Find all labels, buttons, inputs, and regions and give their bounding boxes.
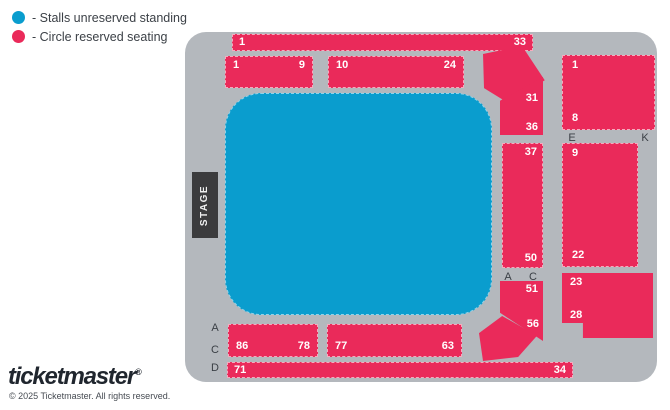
stage-label: STAGE xyxy=(200,184,211,225)
circle-block-1-9[interactable]: 1 9 xyxy=(225,56,313,88)
circle-block-1-33[interactable]: 1 33 xyxy=(232,34,533,51)
circle-block-37-50[interactable]: 37 50 xyxy=(502,143,543,268)
block-start-label: 23 xyxy=(570,277,582,288)
legend-label-stalls: - Stalls unreserved standing xyxy=(32,11,187,25)
registered-mark: ® xyxy=(135,367,142,377)
block-end-label: 28 xyxy=(570,310,582,321)
block-end-label: 63 xyxy=(442,341,454,352)
circle-block-86-78[interactable]: 86 78 xyxy=(228,324,318,357)
legend-item-stalls: - Stalls unreserved standing xyxy=(12,8,187,27)
row-marker-a-left: A xyxy=(208,322,222,334)
block-start-label: 86 xyxy=(236,341,248,352)
block-end-label: 8 xyxy=(572,113,578,124)
block-end-label: 22 xyxy=(572,250,584,261)
block-start-label: 77 xyxy=(335,341,347,352)
block-start-label: 1 xyxy=(572,60,578,71)
block-end-label: 78 xyxy=(298,341,310,352)
block-start-label: 37 xyxy=(525,147,537,158)
circle-block-9-22[interactable]: 9 22 xyxy=(562,143,638,267)
ticketmaster-logo: ticketmaster® xyxy=(8,363,142,391)
venue-map-panel: STAGE 1 33 1 9 10 24 31 36 37 50 xyxy=(185,32,657,382)
block-end-label: 50 xyxy=(525,253,537,264)
row-marker-d-left: D xyxy=(208,362,222,374)
block-start-label: 10 xyxy=(336,60,348,71)
block-start-label: 71 xyxy=(234,365,246,376)
block-end-label: 36 xyxy=(526,122,538,133)
stalls-standing-area[interactable] xyxy=(225,93,492,315)
block-end-label: 34 xyxy=(554,365,566,376)
ticketmaster-logo-text: ticketmaster xyxy=(8,363,135,390)
circle-block-1-8[interactable]: 1 8 xyxy=(562,55,655,130)
circle-block-71-34[interactable]: 71 34 xyxy=(227,362,573,378)
circle-color-dot xyxy=(12,30,25,43)
row-marker-k: K xyxy=(638,132,652,144)
block-start-label: 1 xyxy=(233,60,239,71)
block-end-label: 56 xyxy=(527,319,539,330)
copyright-text: © 2025 Ticketmaster. All rights reserved… xyxy=(9,391,170,401)
legend-label-circle: - Circle reserved seating xyxy=(32,30,167,44)
block-end-label: 9 xyxy=(299,60,305,71)
legend-item-circle: - Circle reserved seating xyxy=(12,27,187,46)
block-end-label: 33 xyxy=(514,37,526,48)
row-marker-c-left: C xyxy=(208,344,222,356)
circle-block-77-63[interactable]: 77 63 xyxy=(327,324,462,357)
circle-block-10-24[interactable]: 10 24 xyxy=(328,56,464,88)
seat-map-page: - Stalls unreserved standing - Circle re… xyxy=(0,0,670,410)
block-start-label: 1 xyxy=(239,37,245,48)
block-start-label: 51 xyxy=(526,284,538,295)
stage: STAGE xyxy=(192,172,218,238)
legend: - Stalls unreserved standing - Circle re… xyxy=(12,8,187,46)
block-start-label: 9 xyxy=(572,148,578,159)
block-start-label: 31 xyxy=(526,93,538,104)
stalls-color-dot xyxy=(12,11,25,24)
circle-block-23-28[interactable]: 23 28 xyxy=(562,273,653,338)
block-end-label: 24 xyxy=(444,60,456,71)
